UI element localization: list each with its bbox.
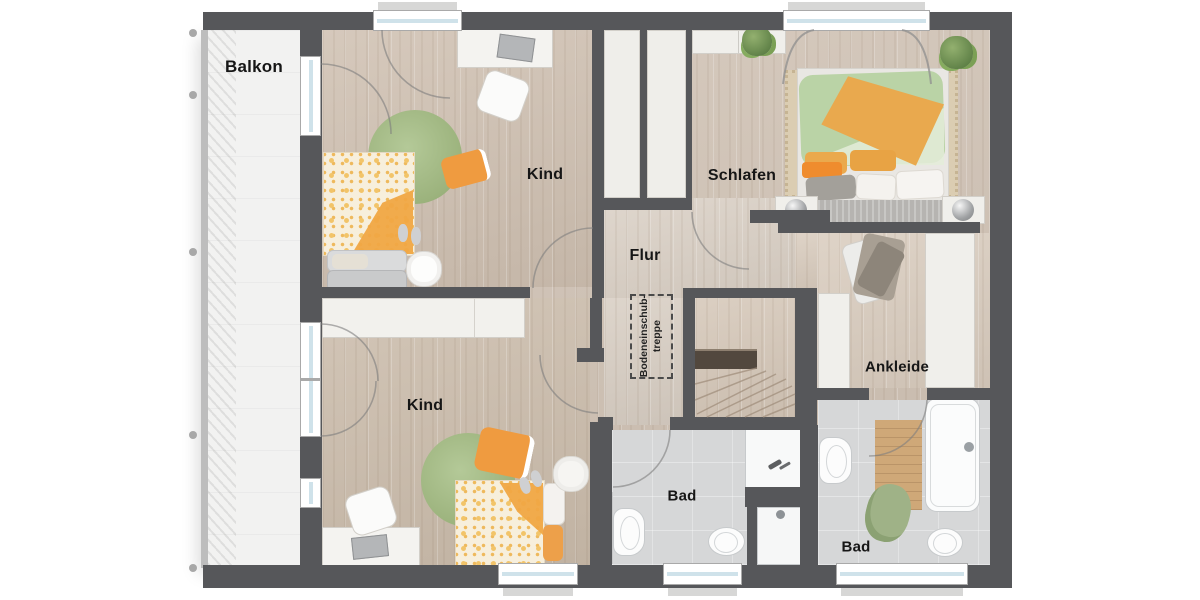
balcony-door-divider: [301, 378, 320, 381]
plant-schlafen-corner: [940, 36, 973, 69]
railing-post: [189, 29, 197, 37]
room-label-ankleide: Ankleide: [865, 359, 929, 376]
railing-post: [189, 248, 197, 256]
railing-post: [189, 431, 197, 439]
window-glass: [377, 19, 458, 23]
closet-schlafen: [647, 30, 686, 198]
wall-stair-right: [795, 288, 817, 425]
wall-kind-top-right: [592, 30, 604, 298]
attic-ladder-label-line2: treppe: [652, 295, 665, 377]
room-label-bad-right: Bad: [842, 539, 871, 556]
faucet-shower-2: [776, 510, 785, 519]
balcony-door-top: [300, 56, 321, 136]
room-label-balkon: Balkon: [225, 57, 283, 77]
laptop-kind-top: [497, 34, 536, 63]
shower-bad-middle: [745, 428, 807, 488]
attic-ladder-label-line1: Bodeneinschub-: [638, 295, 651, 377]
balcony-railing: [201, 30, 208, 568]
bed-schlafen-pillow-orange-2: [850, 150, 896, 171]
room-label-schlafen: Schlafen: [708, 167, 776, 185]
window-glass: [787, 19, 926, 23]
wall-closet-cap: [592, 198, 692, 210]
laptop-kind-bottom: [351, 534, 389, 560]
window-glass: [309, 482, 313, 504]
toy-lamb: [553, 456, 589, 492]
plant-shelf: [742, 26, 772, 56]
wall-closet-divider: [640, 30, 647, 198]
wall-kind-top-bottom: [322, 287, 530, 298]
window-top-kind: [373, 10, 462, 31]
wall-stair-bottom: [670, 417, 817, 430]
room-label-flur: Flur: [629, 247, 660, 265]
stair-void: [695, 349, 757, 369]
room-label-bad-middle: Bad: [668, 488, 697, 505]
bathtub-inner: [930, 404, 976, 507]
toilet-right-seat: [933, 533, 957, 554]
closet-kind-top: [604, 30, 640, 198]
shelf-schlafen-divider: [738, 31, 739, 53]
wardrobe-ankleide-right: [925, 233, 975, 388]
window-glass: [309, 60, 313, 132]
wall-flur-bottom: [683, 288, 795, 298]
wardrobe-kind-bottom-divider: [474, 299, 475, 337]
window-top-schlafen: [783, 10, 930, 31]
toilet-middle-seat: [714, 532, 738, 553]
balcony-railing-shading: [208, 30, 236, 565]
wall-ankleide-bottom-left: [817, 388, 869, 400]
wall-right: [990, 12, 1012, 588]
bed-schlafen-pillow-white-2: [895, 169, 944, 200]
window-glass: [840, 572, 964, 576]
floorplan-canvas: Balkon Kind Schlafen Flur Kind Bad Bad A…: [0, 0, 1200, 600]
railing-post: [189, 91, 197, 99]
lamp-right: [952, 199, 974, 221]
wall-stair-left: [683, 298, 695, 425]
window-bottom-bad-right: [836, 563, 968, 585]
window-glass: [502, 572, 574, 576]
window-bottom-bad-middle: [663, 563, 742, 585]
wardrobe-kind-bottom: [322, 298, 525, 338]
attic-ladder-label: Bodeneinschub- treppe: [638, 295, 664, 377]
window-bottom-kind: [498, 563, 578, 585]
room-label-kind-bottom: Kind: [407, 397, 443, 415]
slippers-kind-top: [398, 224, 408, 242]
wall-bad-middle-left: [590, 422, 612, 565]
railing-post: [189, 564, 197, 572]
wall-ankleide-bottom-right: [927, 388, 990, 400]
side-table-kind-top: [406, 251, 442, 287]
bathtub-faucet: [964, 442, 974, 452]
wall-door-stub: [577, 348, 604, 362]
floor-ankleide-entry: [795, 233, 817, 288]
sink-middle-basin: [620, 516, 640, 550]
bed-kind-bottom-pillow-orange: [543, 525, 563, 561]
balcony-posts: [189, 29, 197, 572]
attic-ladder-label-box: Bodeneinschub- treppe: [630, 294, 673, 379]
wall-shower-band: [745, 487, 807, 507]
bed-schlafen-pillow-white-1: [855, 173, 896, 201]
wardrobe-ankleide-left: [818, 293, 850, 390]
bed-kind-top-pillow-3: [332, 254, 368, 269]
wall-kind-bottom-right-upper: [590, 298, 602, 350]
room-label-kind-top: Kind: [527, 166, 563, 184]
sink-right-basin: [826, 445, 847, 478]
wall-schlafen-bottom: [778, 222, 980, 233]
wall-schlafen-left-edge: [686, 30, 692, 198]
window-glass: [667, 572, 738, 576]
wall-bad-right-left: [800, 425, 818, 565]
balcony-window-small: [300, 478, 321, 508]
